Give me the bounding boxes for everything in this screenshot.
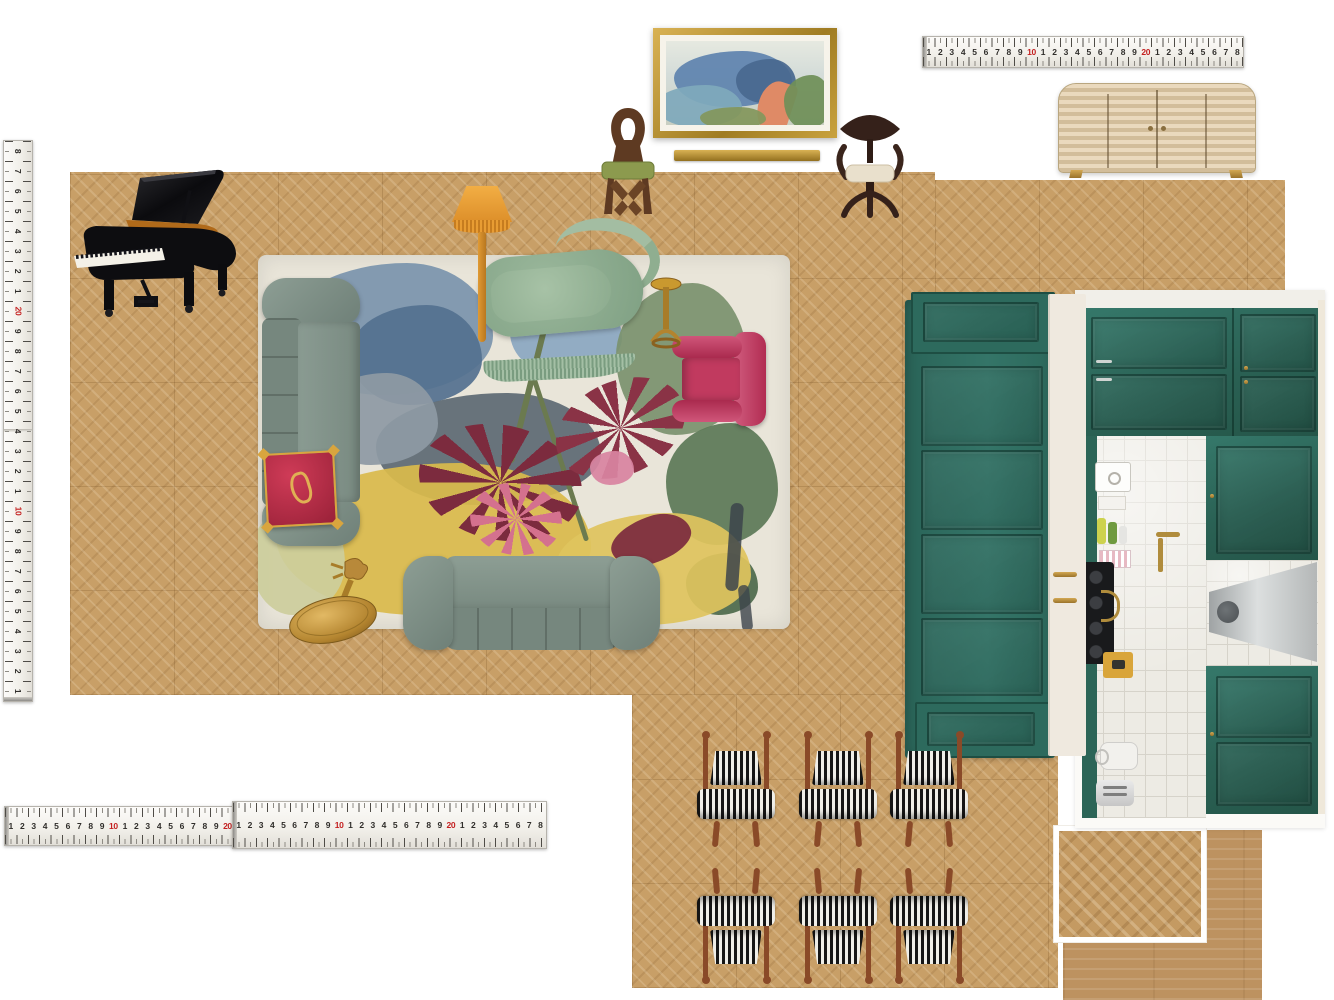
sofa-seat xyxy=(445,556,618,614)
bottle xyxy=(1108,522,1117,544)
credenza-door-seam xyxy=(1107,94,1109,168)
ruler-number: 7 xyxy=(188,821,199,831)
tape-scale: 123456789101234567892012345678 xyxy=(923,37,1243,67)
chair-leg xyxy=(752,821,760,847)
ruler-number: 8 xyxy=(1231,47,1242,57)
ruler-number: 3 xyxy=(946,47,957,57)
ruler-number: 6 xyxy=(1209,47,1220,57)
ruler-number: 7 xyxy=(1220,47,1231,57)
island-panel xyxy=(923,302,1039,342)
chair-back-cushion xyxy=(903,930,955,964)
chair-back-cushion xyxy=(812,930,864,964)
credenza-door-seam xyxy=(1156,90,1158,168)
ruler-number: 4 xyxy=(490,820,501,830)
ruler-number: 2 xyxy=(8,269,28,273)
ruler-number: 9 xyxy=(322,820,333,830)
bentwood-loop-chair[interactable] xyxy=(594,106,662,222)
cabinet-door xyxy=(1091,374,1227,430)
ruler-number: 7 xyxy=(8,369,28,373)
ruler-number: 6 xyxy=(512,820,523,830)
sculpted-wood-armchair[interactable] xyxy=(832,109,908,219)
ruler-number: 3 xyxy=(142,821,153,831)
ruler-number: 7 xyxy=(300,820,311,830)
kitchen-base-cabinet xyxy=(1206,666,1318,814)
kitchen-tall-cabinet xyxy=(1206,436,1318,560)
dining-chair[interactable] xyxy=(888,733,970,847)
chair-arm xyxy=(839,147,846,177)
chair-ribbon-base xyxy=(610,180,646,216)
ruler-number: 1 xyxy=(345,820,356,830)
ruler-number: 6 xyxy=(176,821,187,831)
ruler-number: 2 xyxy=(244,820,255,830)
rug-motif-pink xyxy=(590,451,634,485)
chair-seat-cushion xyxy=(890,789,968,819)
faucet xyxy=(1158,538,1163,572)
ruler-number: 1 xyxy=(233,820,244,830)
ruler-number: 5 xyxy=(165,821,176,831)
ruler-number: 4 xyxy=(1186,47,1197,57)
ruler-number: 5 xyxy=(969,47,980,57)
ruler-number: 6 xyxy=(289,820,300,830)
ruler-number: 3 xyxy=(1174,47,1185,57)
toaster xyxy=(1096,780,1134,806)
armchair-seat xyxy=(682,358,740,400)
chair-loop-back xyxy=(611,108,645,166)
chair-leg xyxy=(945,868,953,894)
ruler-number: 4 xyxy=(153,821,164,831)
dining-chair[interactable] xyxy=(695,868,777,982)
kitchen-scale xyxy=(1103,652,1133,678)
chair-seat-green xyxy=(602,162,654,179)
piano-leg xyxy=(184,272,194,306)
chair-leg xyxy=(854,868,862,894)
kettle-handle xyxy=(1095,749,1109,765)
chair-leg xyxy=(905,868,913,894)
ruler-number: 7 xyxy=(8,169,28,173)
measuring-tape-top[interactable]: 123456789101234567892012345678 xyxy=(922,36,1244,68)
ruler-number: 7 xyxy=(992,47,1003,57)
ruler-number: 2 xyxy=(8,469,28,473)
ruler-number: 4 xyxy=(378,820,389,830)
herringbone-floor-swatch[interactable] xyxy=(1054,826,1206,942)
ruler-number: 8 xyxy=(423,820,434,830)
credenza-knob xyxy=(1148,126,1153,131)
ruler-number: 5 xyxy=(501,820,512,830)
kettle xyxy=(1100,742,1138,770)
dining-chair[interactable] xyxy=(797,733,879,847)
chair-seat-cushion xyxy=(799,789,877,819)
appliance-dial xyxy=(1108,472,1121,485)
ruler-number: 3 xyxy=(8,249,28,253)
ruler-number: 8 xyxy=(1117,47,1128,57)
island-pull xyxy=(1053,598,1077,603)
ruler-number: 4 xyxy=(8,229,28,233)
ruler-number: 8 xyxy=(199,821,210,831)
ruler-number: 5 xyxy=(389,820,400,830)
chair-leg xyxy=(854,821,862,847)
ruler-number: 4 xyxy=(1071,47,1082,57)
ruler-number: 3 xyxy=(8,449,28,453)
ruler-number: 2 xyxy=(130,821,141,831)
credenza-door-seam xyxy=(1205,94,1207,168)
cabinet-seam xyxy=(1232,308,1234,436)
ruler-number: 8 xyxy=(535,820,546,830)
piano-leg xyxy=(218,264,227,290)
ruler-number: 7 xyxy=(8,569,28,573)
cabinet-handle xyxy=(1096,360,1112,363)
lamp-pole xyxy=(478,232,486,342)
brass-pedestal-side-table[interactable] xyxy=(285,552,397,648)
martini-stem xyxy=(663,287,669,329)
chair-seat-cushion xyxy=(697,789,775,819)
ruler-number: 3 xyxy=(255,820,266,830)
cabinet-knob xyxy=(1210,494,1214,498)
ruler-number: 5 xyxy=(8,209,28,213)
kitchen-island[interactable] xyxy=(905,292,1084,760)
art-image xyxy=(666,41,824,125)
ruler-number: 5 xyxy=(278,820,289,830)
ruler-number: 3 xyxy=(367,820,378,830)
ruler-number: 10 xyxy=(334,820,345,830)
chair-leg xyxy=(642,178,652,214)
island-panel xyxy=(921,618,1043,696)
tape-scale: 123456789101234567892012345678 xyxy=(233,802,546,848)
chair-back-cushion xyxy=(812,751,864,785)
ruler-number: 7 xyxy=(412,820,423,830)
credenza-body xyxy=(1058,83,1256,173)
island-panel xyxy=(921,366,1043,446)
ruler-number: 8 xyxy=(85,821,96,831)
tape-scale: 123456789101234567892012345678 xyxy=(4,141,32,701)
ruler-number: 6 xyxy=(8,189,28,193)
cabinet-knob xyxy=(1210,732,1214,736)
island-top-section xyxy=(911,292,1055,354)
ruler-number: 7 xyxy=(73,821,84,831)
ruler-number: 9 xyxy=(8,329,28,333)
brass-martini-table[interactable] xyxy=(648,276,684,350)
sofa-backrest xyxy=(443,608,620,650)
measuring-tape-left-vertical[interactable]: 123456789101234567892012345678 xyxy=(3,140,33,702)
ruler-number: 9 xyxy=(210,821,221,831)
ruler-number: 7 xyxy=(523,820,534,830)
design-canvas: { "board": { "type": "interior-design-fl… xyxy=(0,0,1334,1000)
faucet-spout xyxy=(1156,532,1180,537)
cushion-motif xyxy=(287,470,315,506)
chair-leg xyxy=(844,193,870,215)
kitchen-photo-edge xyxy=(1318,300,1325,814)
scale-screen xyxy=(1112,660,1125,669)
piano-pedal-lyre xyxy=(136,280,156,305)
wall-art-landscape[interactable] xyxy=(653,28,837,138)
ruler-number: 1 xyxy=(119,821,130,831)
cabinet-door xyxy=(1216,446,1312,554)
cabinet-door xyxy=(1240,314,1316,372)
cabinet-door xyxy=(1216,742,1312,806)
chair-leg xyxy=(814,868,822,894)
island-panel xyxy=(921,450,1043,530)
ruler-number: 20 xyxy=(1140,47,1151,57)
tape-scale: 1234567891012345678920 xyxy=(5,807,233,845)
ruler-number: 6 xyxy=(401,820,412,830)
chair-arm xyxy=(894,147,901,177)
kitchen-upper-cabinets xyxy=(1082,308,1320,436)
ruler-number: 3 xyxy=(1060,47,1071,57)
ruler-number: 5 xyxy=(1083,47,1094,57)
credenza-foot xyxy=(1069,170,1083,178)
ruler-number: 9 xyxy=(1014,47,1025,57)
sofa-arm xyxy=(403,556,453,650)
ruler-number: 9 xyxy=(96,821,107,831)
ruler-number: 1 xyxy=(8,489,28,493)
measuring-tape-bottom-left[interactable]: 1234567891012345678920 xyxy=(4,806,234,846)
art-vegetation xyxy=(700,107,766,125)
kitchen-cabinetry-run[interactable] xyxy=(1075,290,1325,828)
bottle xyxy=(1119,526,1127,544)
ruler-number: 10 xyxy=(8,507,28,516)
chair-leg xyxy=(945,821,953,847)
fringed-floor-lamp[interactable] xyxy=(448,186,516,342)
ruler-number: 10 xyxy=(108,821,119,831)
ruler-number: 5 xyxy=(8,609,28,613)
grand-piano[interactable] xyxy=(66,168,252,324)
toaster-slot xyxy=(1103,786,1127,789)
toaster-slot xyxy=(1103,793,1127,796)
cabinet-knob xyxy=(1244,380,1248,384)
ruler-number: 6 xyxy=(1094,47,1105,57)
ruler-number: 8 xyxy=(311,820,322,830)
ruler-number: 2 xyxy=(356,820,367,830)
ruler-number: 2 xyxy=(1049,47,1060,57)
cabinet-door xyxy=(1240,376,1316,432)
chair-crest-rail xyxy=(840,115,900,141)
ruler-number: 1 xyxy=(5,821,16,831)
ruler-number: 1 xyxy=(923,47,934,57)
table-top xyxy=(285,589,380,648)
ruler-number: 1 xyxy=(1151,47,1162,57)
ruler-number: 10 xyxy=(1026,47,1037,57)
ruler-number: 4 xyxy=(957,47,968,57)
credenza-foot xyxy=(1229,170,1243,178)
table-ornament xyxy=(345,558,368,579)
ruler-number: 7 xyxy=(1106,47,1117,57)
tasselled-cushion[interactable] xyxy=(263,450,338,528)
ruler-number: 8 xyxy=(8,149,28,153)
ruler-number: 2 xyxy=(16,821,27,831)
ruler-number: 8 xyxy=(8,349,28,353)
hood-funnel xyxy=(1217,601,1239,623)
ruler-number: 4 xyxy=(39,821,50,831)
ruler-number: 9 xyxy=(1129,47,1140,57)
dining-chair[interactable] xyxy=(695,733,777,847)
wall-appliance xyxy=(1095,462,1131,492)
bottle xyxy=(1097,518,1106,544)
cabinet-knob xyxy=(1244,366,1248,370)
chair-seat-cream xyxy=(846,165,894,182)
ruler-number: 3 xyxy=(479,820,490,830)
island-panel xyxy=(921,534,1043,614)
striped-credenza[interactable] xyxy=(1058,83,1254,179)
ruler-number: 6 xyxy=(62,821,73,831)
chair-leg xyxy=(712,821,720,847)
ruler-number: 9 xyxy=(434,820,445,830)
ruler-number: 5 xyxy=(51,821,62,831)
chair-leg xyxy=(870,193,896,215)
counter-item xyxy=(1098,496,1126,510)
sofa-arm xyxy=(610,556,660,650)
chair-seat-cushion xyxy=(890,896,968,926)
chair-leg xyxy=(752,868,760,894)
velvet-armchair[interactable] xyxy=(672,332,766,426)
ruler-number: 2 xyxy=(468,820,479,830)
dining-chair[interactable] xyxy=(797,868,879,982)
ruler-number: 3 xyxy=(8,649,28,653)
ruler-number: 1 xyxy=(1037,47,1048,57)
ruler-number: 6 xyxy=(8,389,28,393)
ruler-number: 4 xyxy=(8,429,28,433)
piano-leg xyxy=(104,280,114,310)
chair-back-cushion xyxy=(710,930,762,964)
ruler-number: 4 xyxy=(8,629,28,633)
island-pull xyxy=(1053,572,1077,577)
chair-leg xyxy=(905,821,913,847)
ruler-number: 5 xyxy=(8,409,28,413)
ruler-number: 2 xyxy=(1163,47,1174,57)
ruler-number: 20 xyxy=(8,307,28,316)
ruler-number: 8 xyxy=(1003,47,1014,57)
chair-back-cushion xyxy=(710,751,762,785)
velvet-sofa-bottom[interactable] xyxy=(403,556,660,650)
ruler-number: 1 xyxy=(8,289,28,293)
lamp-shade xyxy=(452,186,512,222)
credenza-knob xyxy=(1161,126,1166,131)
cabinet-handle xyxy=(1096,378,1112,381)
ruler-number: 6 xyxy=(8,589,28,593)
chair-seat-cushion xyxy=(697,896,775,926)
armchair-arm xyxy=(672,400,742,422)
ruler-number: 4 xyxy=(267,820,278,830)
chair-seat-cushion xyxy=(799,896,877,926)
ruler-number: 5 xyxy=(1197,47,1208,57)
cabinet-door xyxy=(1216,676,1312,738)
chair-leg xyxy=(814,821,822,847)
chair-back-cushion xyxy=(903,751,955,785)
ruler-number: 8 xyxy=(8,549,28,553)
chair-leg xyxy=(712,868,720,894)
ruler-number: 1 xyxy=(456,820,467,830)
dining-chair[interactable] xyxy=(888,868,970,982)
ruler-number: 1 xyxy=(8,689,28,693)
ruler-number: 6 xyxy=(980,47,991,57)
chair-leg xyxy=(604,178,614,214)
ruler-number: 2 xyxy=(8,669,28,673)
ruler-number: 9 xyxy=(8,529,28,533)
island-counter-edge xyxy=(1048,294,1086,756)
frame-moulding-strip[interactable] xyxy=(674,150,820,161)
ruler-number: 20 xyxy=(445,820,456,830)
ruler-number: 2 xyxy=(934,47,945,57)
ruler-number: 3 xyxy=(28,821,39,831)
measuring-tape-bottom-right[interactable]: 123456789101234567892012345678 xyxy=(232,801,547,849)
